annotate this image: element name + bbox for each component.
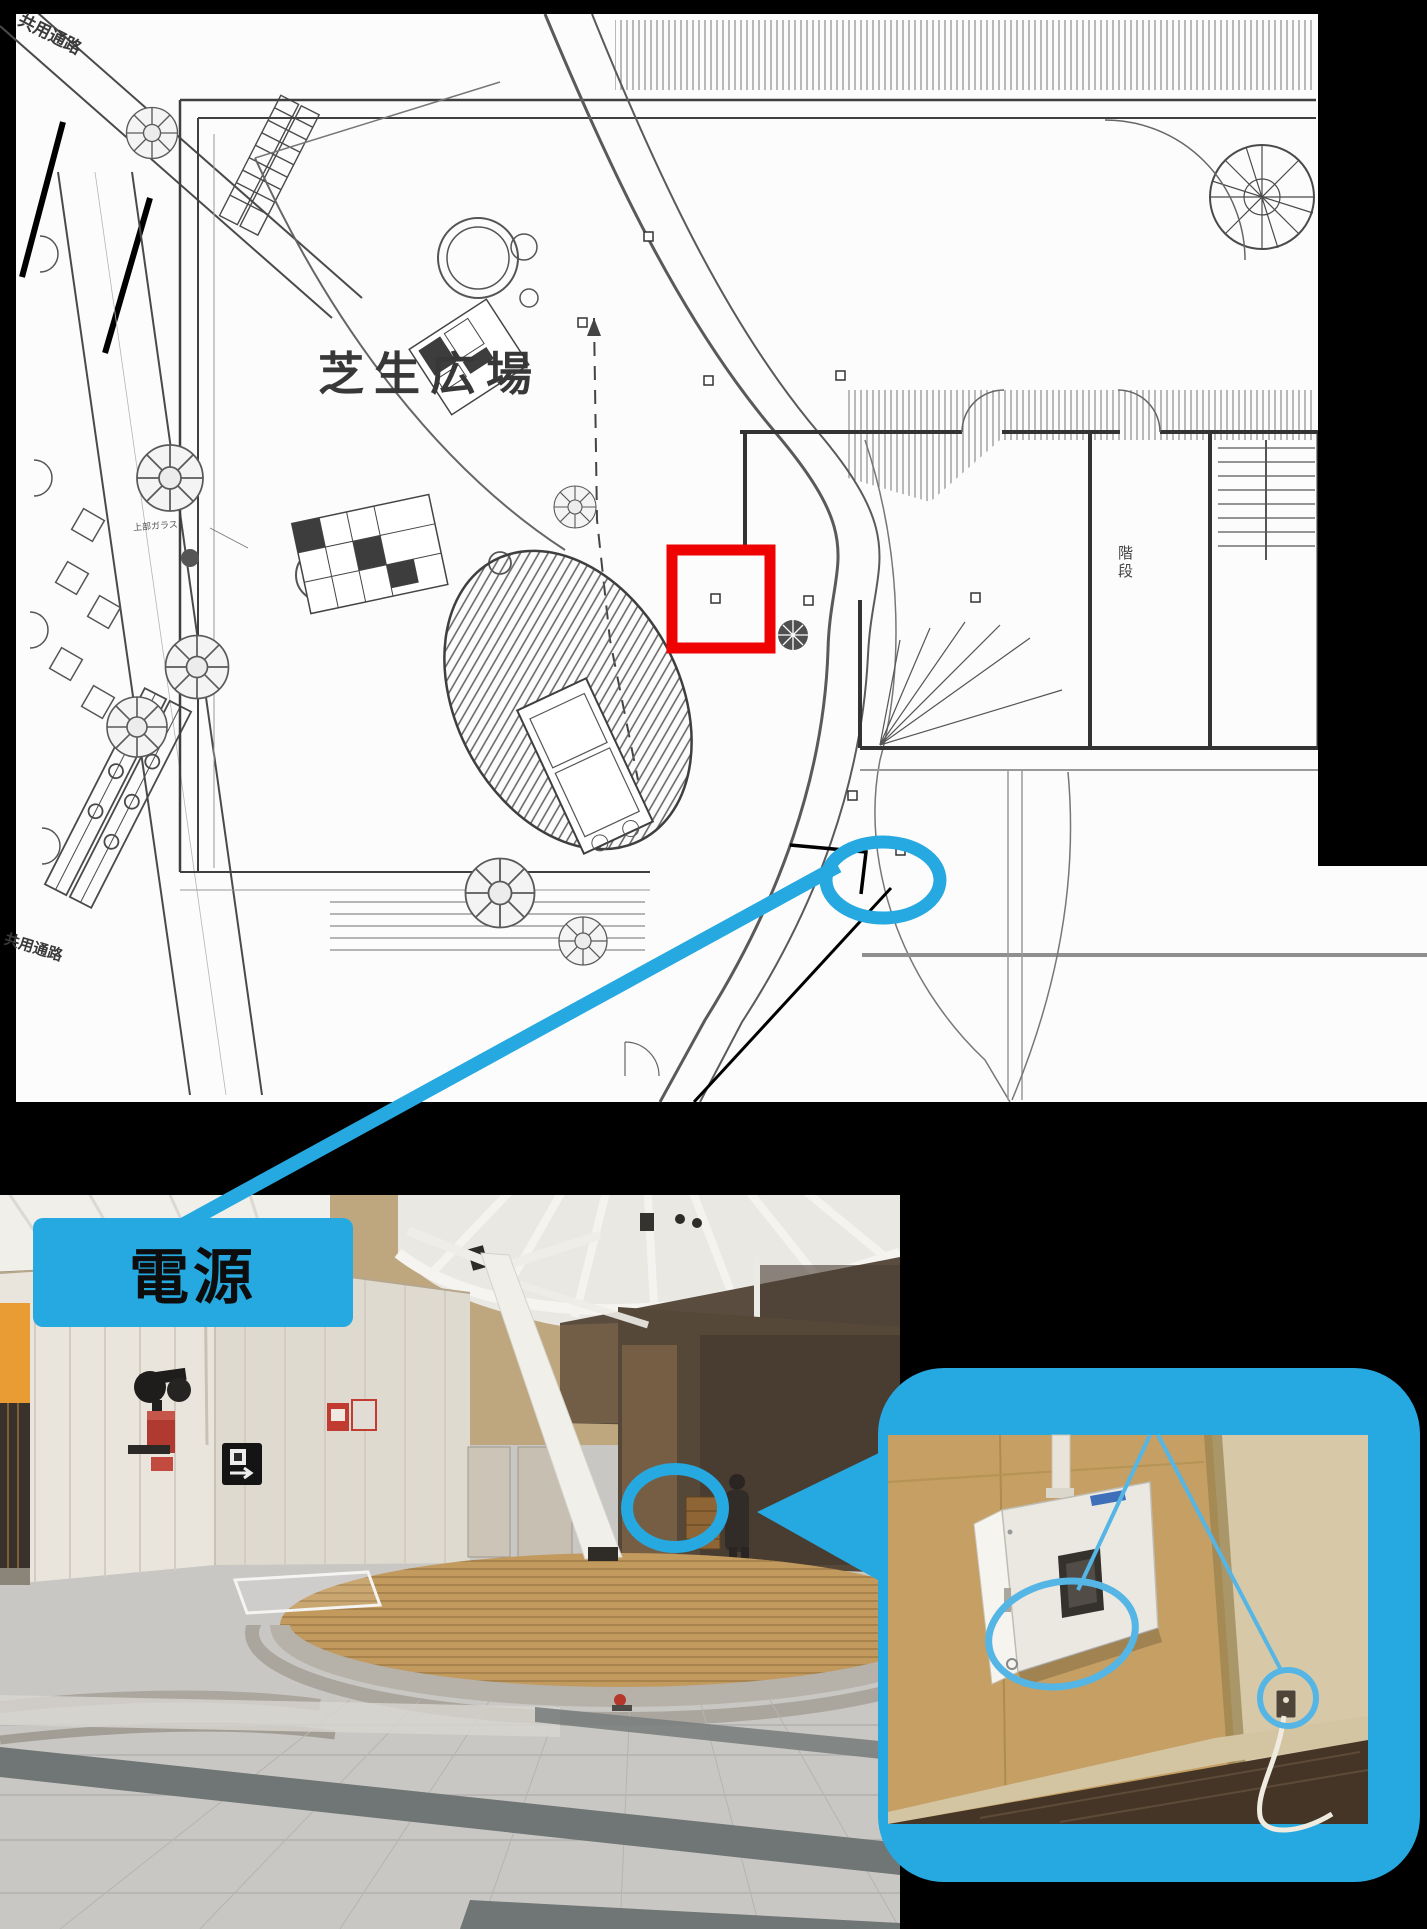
power-label: 電源 (33, 1218, 353, 1327)
plan-circle-marker (826, 842, 940, 918)
callout-balloon (757, 1368, 1420, 1882)
power-outlet (1276, 1690, 1296, 1718)
callout-tail (757, 1450, 885, 1584)
annotated-power-location-figure: 共用通路 上部ガラス 芝生広場 階段 共用通路 (0, 0, 1427, 1929)
annotation-overlay (0, 0, 1427, 1929)
red-square-marker (672, 550, 770, 648)
inset-photo (888, 1435, 1368, 1830)
photo-circle-marker (627, 1469, 723, 1547)
blue-connector-line (155, 866, 838, 1240)
